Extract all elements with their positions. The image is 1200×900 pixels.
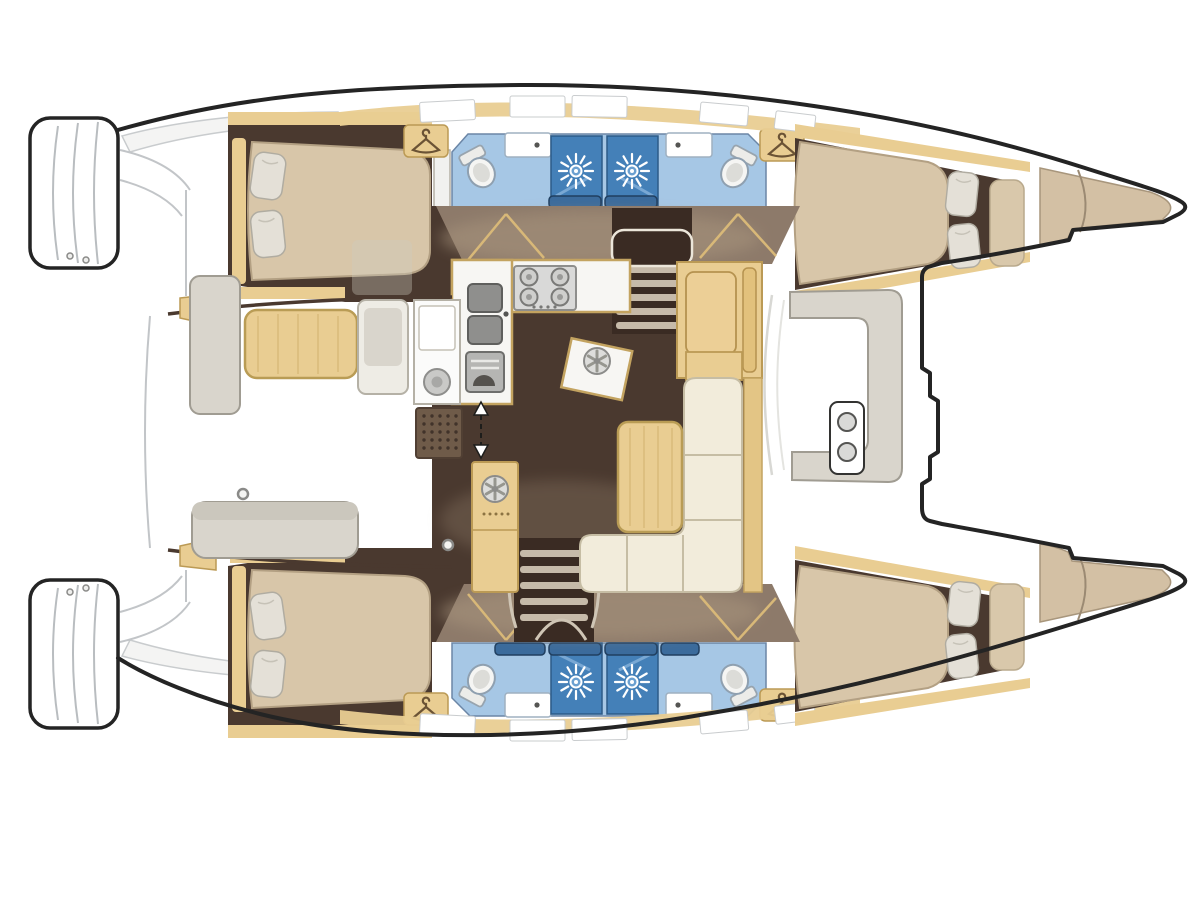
- pillow-icon: [249, 591, 287, 641]
- starboard-aft-cabin: [228, 548, 432, 738]
- hatch-wheel-icon: [584, 348, 610, 374]
- cockpit-table: [245, 310, 357, 378]
- swim-platform-starboard: [30, 580, 118, 728]
- cup-holder-panel: [830, 402, 864, 474]
- port-fwd-berth: [795, 142, 949, 284]
- cup-holder-icon: [838, 413, 856, 431]
- cockpit-wet-bar: [414, 300, 462, 458]
- port-locker: [434, 150, 450, 210]
- hatch-wheel-icon: [482, 476, 508, 502]
- stove-burner-icon: [521, 269, 538, 286]
- floor-grate-icon: [416, 408, 462, 458]
- cockpit-bench-aft: [192, 502, 358, 558]
- stove: [514, 266, 576, 310]
- deck-ring: [443, 540, 453, 550]
- pillow-icon: [249, 151, 287, 201]
- bow-seat-cushion: [990, 584, 1024, 670]
- port-bathrooms: [404, 125, 804, 208]
- fridge-cabinet: [472, 462, 518, 592]
- swim-platform-port: [30, 118, 118, 268]
- pillow-icon: [945, 171, 980, 218]
- stove-burner-icon: [552, 269, 569, 286]
- pillow-icon: [947, 581, 982, 628]
- cockpit-seat-cushion: [364, 308, 402, 366]
- oven-icon: [466, 352, 504, 392]
- wardrobe-port-aft: [404, 125, 448, 157]
- stove-burner-icon: [521, 289, 538, 306]
- deck-ring: [238, 489, 248, 499]
- pillow-icon: [250, 649, 287, 698]
- cockpit-bench-side: [190, 276, 240, 414]
- saloon: [432, 206, 800, 642]
- catamaran-floor-plan: [0, 0, 1200, 900]
- washbasin: [666, 133, 712, 157]
- washbasin: [505, 133, 551, 157]
- settee-end-cabinet: [686, 352, 742, 380]
- cup-holder-icon: [838, 443, 856, 461]
- washbasin: [505, 693, 551, 717]
- floor-plan-svg: [0, 0, 1200, 900]
- stove-burner-icon: [552, 289, 569, 306]
- settee-back-panel: [744, 378, 762, 592]
- pillow-icon: [250, 209, 287, 258]
- starboard-fwd-berth: [795, 566, 949, 708]
- port-aft-cabin: [228, 112, 432, 302]
